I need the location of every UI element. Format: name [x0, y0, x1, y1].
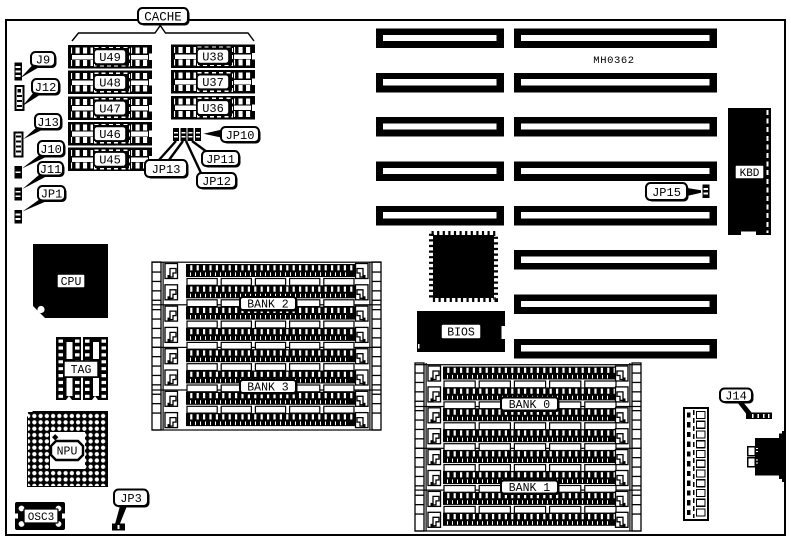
svg-text:CACHE: CACHE [144, 11, 182, 25]
svg-text:JP12: JP12 [202, 175, 231, 189]
svg-text:MH0362: MH0362 [593, 55, 634, 67]
svg-text:JP3: JP3 [120, 492, 142, 506]
svg-text:J10: J10 [40, 143, 62, 157]
svg-text:U47: U47 [99, 102, 121, 116]
svg-text:J14: J14 [725, 390, 747, 404]
svg-text:BANK 3: BANK 3 [247, 382, 289, 395]
svg-text:JP13: JP13 [152, 163, 181, 177]
svg-text:TAG: TAG [71, 364, 92, 377]
svg-text:JP11: JP11 [206, 153, 235, 167]
svg-text:JP15: JP15 [652, 186, 681, 200]
svg-text:J12: J12 [35, 81, 57, 95]
svg-text:CPU: CPU [61, 276, 82, 289]
svg-text:OSC3: OSC3 [28, 512, 54, 524]
svg-text:BANK 2: BANK 2 [247, 299, 289, 312]
svg-text:U45: U45 [99, 154, 121, 168]
svg-text:U46: U46 [99, 128, 121, 142]
svg-text:U49: U49 [99, 51, 121, 65]
svg-text:U37: U37 [202, 76, 224, 90]
svg-text:JP10: JP10 [226, 129, 255, 143]
svg-text:U48: U48 [99, 77, 121, 91]
svg-text:NPU: NPU [57, 446, 78, 459]
svg-text:BIOS: BIOS [447, 327, 475, 340]
svg-text:BANK 1: BANK 1 [509, 482, 551, 495]
svg-text:U38: U38 [202, 51, 224, 65]
svg-text:BANK 0: BANK 0 [509, 399, 551, 412]
svg-text:JP1: JP1 [41, 188, 63, 202]
svg-text:KBD: KBD [740, 168, 760, 180]
svg-text:U36: U36 [202, 102, 224, 116]
